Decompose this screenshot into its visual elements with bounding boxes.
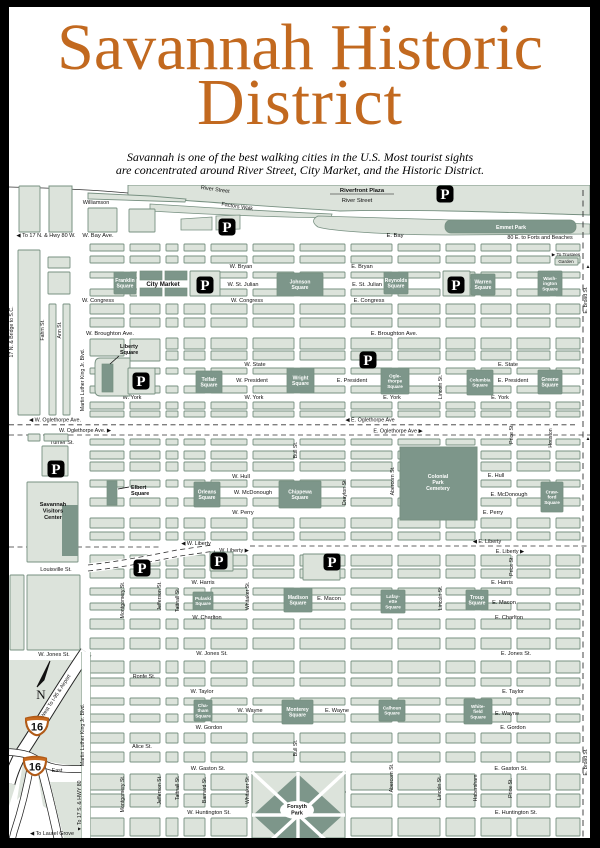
svg-text:W. Wayne: W. Wayne — [237, 708, 262, 714]
svg-text:E. Broad St.: E. Broad St. — [583, 287, 589, 314]
svg-text:Lincoln St.: Lincoln St. — [438, 375, 444, 399]
svg-text:P: P — [137, 561, 146, 577]
svg-text:◀ To Laurel Grove: ◀ To Laurel Grove — [30, 831, 74, 837]
svg-text:Price St.: Price St. — [508, 778, 514, 798]
svg-text:Emmet Park: Emmet Park — [496, 225, 526, 231]
svg-text:W. Hull: W. Hull — [232, 474, 250, 480]
svg-text:E. Hull: E. Hull — [488, 473, 504, 479]
svg-text:Wash-ingtonSquare: Wash-ingtonSquare — [542, 276, 558, 291]
svg-text:East: East — [52, 768, 63, 774]
svg-text:E. Broad St.: E. Broad St. — [583, 749, 589, 776]
svg-text:GreeneSquare: GreeneSquare — [541, 377, 558, 389]
svg-text:City Market: City Market — [146, 281, 179, 288]
svg-text:E. State: E. State — [498, 362, 518, 368]
svg-text:W. Harris: W. Harris — [192, 580, 215, 586]
svg-text:PulaskiSquare: PulaskiSquare — [195, 596, 211, 606]
svg-text:E. Macon: E. Macon — [492, 600, 516, 606]
svg-text:ColumbiaSquare: ColumbiaSquare — [470, 378, 491, 388]
svg-text:W. Jones St.: W. Jones St. — [38, 652, 70, 658]
svg-text:P: P — [327, 555, 336, 571]
svg-text:N: N — [36, 687, 46, 702]
svg-text:JohnsonSquare: JohnsonSquare — [290, 279, 311, 291]
svg-text:16: 16 — [29, 761, 41, 773]
svg-text:Garden: Garden — [558, 259, 574, 264]
svg-text:P: P — [222, 220, 231, 236]
svg-text:W. Perry: W. Perry — [232, 510, 254, 516]
svg-text:Houston: Houston — [548, 428, 554, 447]
svg-text:◀ W. Oglethorpe Ave.: ◀ W. Oglethorpe Ave. — [29, 418, 81, 424]
svg-text:▼ To 17 S. & HWY 80: ▼ To 17 S. & HWY 80 — [77, 780, 83, 831]
svg-text:E. Jones St.: E. Jones St. — [501, 651, 532, 657]
svg-text:P: P — [440, 187, 449, 203]
svg-text:OrleansSquare: OrleansSquare — [198, 489, 217, 501]
svg-text:Lincoln St.: Lincoln St. — [437, 776, 443, 800]
svg-text:▲: ▲ — [586, 436, 591, 442]
svg-text:W. Bay Ave.: W. Bay Ave. — [82, 233, 114, 239]
svg-text:Habersham: Habersham — [473, 775, 479, 802]
svg-text:Fahm St.: Fahm St. — [40, 319, 46, 340]
svg-text:E. Congress: E. Congress — [354, 298, 385, 304]
svg-text:Price St.: Price St. — [509, 556, 515, 576]
svg-text:◀ E. Oglethorpe Ave: ◀ E. Oglethorpe Ave — [345, 418, 394, 424]
svg-text:17 N. & Bridge to S.C.: 17 N. & Bridge to S.C. — [9, 306, 15, 357]
svg-text:P: P — [214, 554, 223, 570]
svg-text:P: P — [363, 353, 372, 369]
svg-text:W. Huntington St.: W. Huntington St. — [187, 810, 231, 816]
svg-text:Tattnall St.: Tattnall St. — [175, 588, 181, 612]
svg-text:ReynoldsSquare: ReynoldsSquare — [385, 278, 408, 290]
svg-text:Lincoln St.: Lincoln St. — [438, 586, 444, 610]
svg-text:P: P — [200, 278, 209, 294]
svg-text:E. Macon: E. Macon — [317, 596, 341, 602]
svg-text:FranklinSquare: FranklinSquare — [115, 278, 134, 290]
svg-text:P: P — [451, 278, 460, 294]
svg-text:Jefferson St.: Jefferson St. — [157, 581, 163, 610]
svg-text:Martin Luther King Jr. Blvd.: Martin Luther King Jr. Blvd. — [80, 704, 86, 766]
svg-text:E. Liberty ▶: E. Liberty ▶ — [496, 549, 524, 555]
svg-text:E. Taylor: E. Taylor — [502, 689, 524, 695]
svg-text:E. Huntington St.: E. Huntington St. — [495, 810, 538, 816]
svg-text:MontereySquare: MontereySquare — [286, 707, 308, 719]
svg-text:Abercorn St.: Abercorn St. — [389, 764, 395, 793]
svg-text:LibertySquare: LibertySquare — [120, 344, 138, 356]
svg-text:Whitaker St.: Whitaker St. — [245, 776, 251, 804]
svg-text:MadisonSquare: MadisonSquare — [288, 595, 308, 607]
svg-text:Montgomery St.: Montgomery St. — [120, 582, 126, 619]
svg-text:WrightSquare: WrightSquare — [292, 375, 309, 387]
svg-text:W. State: W. State — [244, 362, 265, 368]
svg-text:▲: ▲ — [586, 264, 591, 270]
svg-text:Ann St.: Ann St. — [57, 321, 63, 338]
svg-text:80 E. to Forts and Beaches: 80 E. to Forts and Beaches — [507, 235, 573, 241]
svg-text:TelfairSquare: TelfairSquare — [201, 377, 218, 389]
svg-text:W. Charlton: W. Charlton — [192, 615, 221, 621]
svg-text:W. President: W. President — [236, 378, 268, 384]
svg-text:Martin Luther King Jr. Blvd.: Martin Luther King Jr. Blvd. — [80, 349, 86, 411]
svg-text:◀ To 17 N. & Hwy 80 W.: ◀ To 17 N. & Hwy 80 W. — [16, 233, 76, 239]
svg-text:Bull St.: Bull St. — [293, 442, 299, 458]
svg-text:E. York: E. York — [491, 395, 509, 401]
svg-text:E. Perry: E. Perry — [483, 510, 503, 516]
svg-text:16: 16 — [31, 721, 43, 733]
svg-text:E. Charlton: E. Charlton — [495, 615, 523, 621]
svg-text:Drayton St.: Drayton St. — [342, 479, 348, 505]
svg-text:Riverfront Plaza: Riverfront Plaza — [340, 188, 385, 194]
svg-text:Price St.: Price St. — [509, 424, 515, 444]
svg-text:E. York: E. York — [383, 395, 401, 401]
svg-text:E. Wayne: E. Wayne — [325, 708, 349, 714]
svg-text:◀ E. Liberty: ◀ E. Liberty — [473, 539, 502, 545]
svg-text:Jefferson St.: Jefferson St. — [157, 775, 163, 804]
svg-text:W. York: W. York — [245, 395, 264, 401]
svg-text:W. Bryan: W. Bryan — [230, 264, 253, 270]
svg-text:P: P — [136, 374, 145, 390]
svg-text:W. St. Julian: W. St. Julian — [227, 282, 258, 288]
svg-text:Ronfe St.: Ronfe St. — [133, 674, 155, 680]
svg-text:E. McDonough: E. McDonough — [490, 492, 527, 498]
svg-text:Louisville St.: Louisville St. — [40, 567, 72, 573]
svg-text:ChippewaSquare: ChippewaSquare — [288, 489, 312, 501]
svg-text:Tattnall St.: Tattnall St. — [175, 776, 181, 800]
svg-text:W. Jones St.: W. Jones St. — [196, 651, 228, 657]
svg-text:TroupSquare: TroupSquare — [469, 595, 486, 607]
svg-text:Ogle-thorpeSquare: Ogle-thorpeSquare — [387, 373, 403, 388]
svg-text:W. Broughton Ave.: W. Broughton Ave. — [86, 331, 134, 337]
svg-text:W. Gaston St.: W. Gaston St. — [191, 766, 226, 772]
svg-text:E. Bay: E. Bay — [386, 233, 403, 239]
svg-text:E. Gordon: E. Gordon — [500, 725, 526, 731]
svg-text:W. Oglethorpe Ave. ▶: W. Oglethorpe Ave. ▶ — [59, 428, 111, 434]
svg-text:Whitaker St.: Whitaker St. — [245, 582, 251, 610]
svg-text:W. Congress: W. Congress — [231, 298, 263, 304]
svg-text:◀ W. Liberty: ◀ W. Liberty — [181, 541, 211, 547]
svg-text:Barnard St.: Barnard St. — [202, 777, 208, 803]
svg-text:Alice St.: Alice St. — [132, 744, 152, 750]
svg-text:E. President: E. President — [498, 378, 529, 384]
svg-text:E. Wayne: E. Wayne — [495, 711, 519, 717]
svg-text:Abercorn St.: Abercorn St. — [390, 467, 396, 496]
svg-text:CalhounSquare: CalhounSquare — [383, 706, 402, 716]
svg-text:W. McDonough: W. McDonough — [234, 490, 272, 496]
svg-text:E. Gaston St.: E. Gaston St. — [494, 766, 528, 772]
svg-text:W. Taylor: W. Taylor — [191, 689, 214, 695]
svg-text:E. Harris: E. Harris — [491, 580, 513, 586]
svg-text:Williamson: Williamson — [83, 200, 110, 206]
svg-text:W. Congress: W. Congress — [82, 298, 114, 304]
svg-text:W. Gordon: W. Gordon — [196, 725, 223, 731]
svg-text:River Street: River Street — [342, 198, 373, 204]
svg-text:P: P — [51, 462, 60, 478]
svg-text:E. St. Julian: E. St. Julian — [352, 282, 382, 288]
svg-text:E. President: E. President — [337, 378, 368, 384]
svg-text:▶ To Trustees: ▶ To Trustees — [552, 252, 581, 257]
svg-text:E. Bryan: E. Bryan — [351, 264, 372, 270]
svg-text:E. Oglethorpe Ave ▶: E. Oglethorpe Ave ▶ — [373, 429, 422, 435]
svg-text:Montgomery St.: Montgomery St. — [120, 776, 126, 813]
svg-text:E. Broughton Ave.: E. Broughton Ave. — [371, 331, 418, 337]
svg-text:Bull St.: Bull St. — [293, 740, 299, 756]
svg-text:WarrenSquare: WarrenSquare — [474, 279, 491, 291]
